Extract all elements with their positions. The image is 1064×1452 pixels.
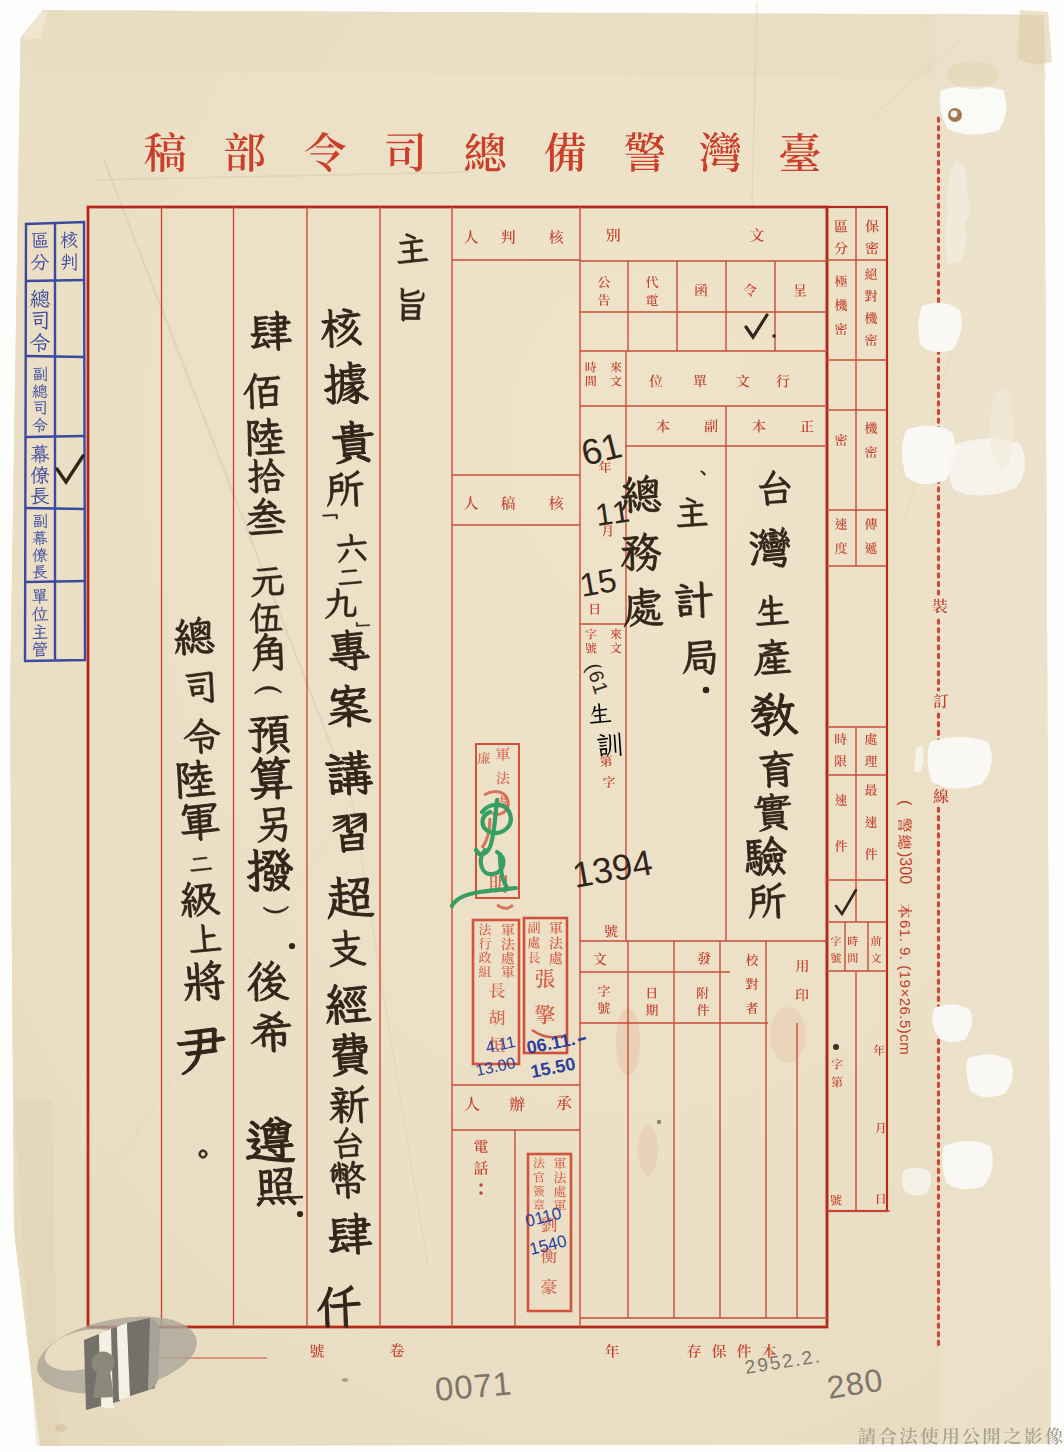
svg-text:11: 11 (593, 493, 634, 533)
svg-text:(: ( (896, 800, 915, 806)
svg-text:61. 9. (19×26.5)cm: 61. 9. (19×26.5)cm (897, 920, 914, 1055)
svg-text:)300: )300 (897, 852, 914, 884)
svg-text:0071: 0071 (433, 1364, 513, 1408)
svg-text:15: 15 (577, 561, 620, 604)
